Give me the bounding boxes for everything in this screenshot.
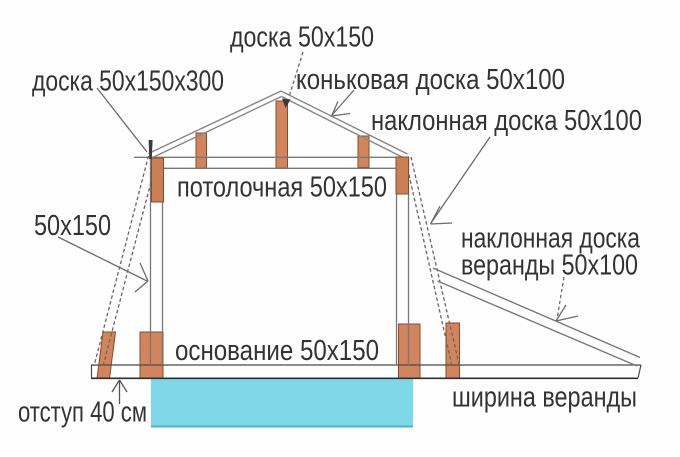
svg-text:коньковая доска 50х100: коньковая доска 50х100 xyxy=(296,64,565,96)
svg-text:доска 50х150х300: доска 50х150х300 xyxy=(32,66,224,98)
svg-text:50х150: 50х150 xyxy=(34,210,111,242)
svg-text:отступ 40 см: отступ 40 см xyxy=(18,397,147,429)
svg-text:доска 50х150: доска 50х150 xyxy=(230,22,374,54)
svg-text:основание 50х150: основание 50х150 xyxy=(175,335,379,367)
svg-text:потолочная 50х150: потолочная 50х150 xyxy=(177,172,387,204)
svg-text:веранды 50х100: веранды 50х100 xyxy=(461,250,638,282)
svg-text:наклонная доска 50х100: наклонная доска 50х100 xyxy=(371,105,642,137)
svg-text:ширина веранды: ширина веранды xyxy=(452,382,637,414)
